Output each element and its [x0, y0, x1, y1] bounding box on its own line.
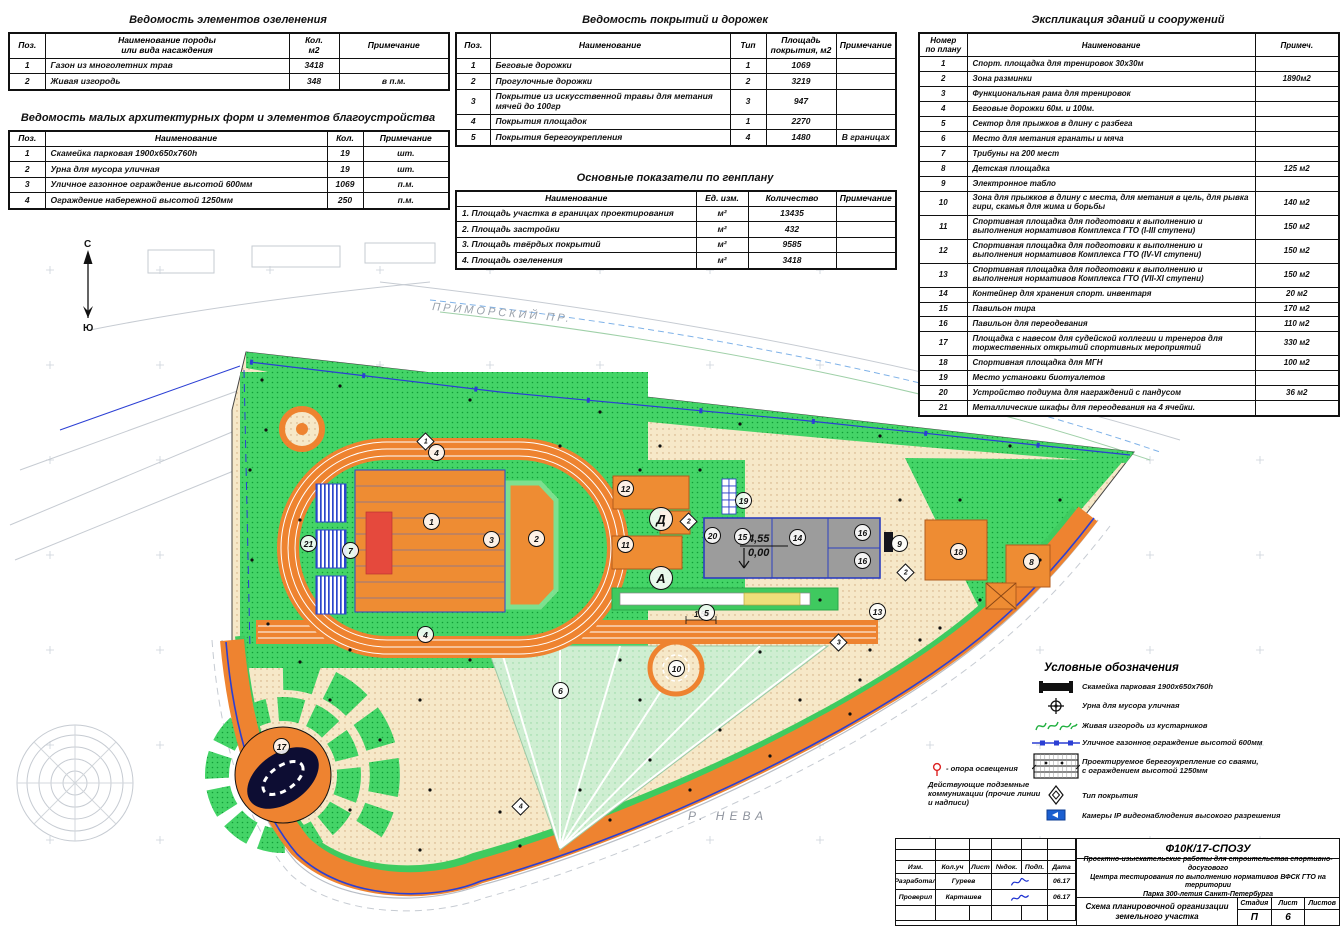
table-cell	[1255, 147, 1339, 162]
table-cell: 9	[919, 177, 967, 192]
plan-marker-3: 3	[483, 531, 500, 548]
plan-marker-18: 18	[950, 543, 967, 560]
plan-marker-15: 15	[734, 528, 751, 545]
table-cell: Живая изгородь	[45, 74, 289, 90]
table-cell: 4	[919, 102, 967, 117]
sheet-title: Схема планировочной организации земельно…	[1077, 898, 1238, 925]
table-cell: Площадка с навесом для судейской коллеги…	[967, 332, 1255, 356]
elevation-bottom: 0,00	[748, 547, 770, 559]
table-cell: 2. Площадь застройки	[456, 222, 696, 238]
round-plaza	[282, 409, 322, 449]
table-row: 18Спортивная площадка для МГН100 м2	[919, 356, 1339, 371]
table-cell: Зона разминки	[967, 72, 1255, 87]
table-row: 19Место установки биотуалетов	[919, 371, 1339, 386]
table-cell: Электронное табло	[967, 177, 1255, 192]
compass: С Ю	[83, 239, 93, 334]
stage-label: Стадия	[1238, 898, 1272, 910]
table-cell: Павильон тира	[967, 302, 1255, 317]
sig-name: Карташев	[936, 890, 992, 906]
river-label: Р. НЕВА	[688, 809, 768, 823]
table-row: 3Покрытие из искусственной травы для мет…	[456, 89, 896, 114]
table-row: 10Зона для прыжков в длину с места, для …	[919, 191, 1339, 215]
stage-value: П	[1238, 910, 1272, 925]
table-cell	[1255, 401, 1339, 416]
plan-marker-12: 12	[617, 480, 634, 497]
table-row: 1Газон из многолетних трав3418	[9, 58, 449, 74]
table-cell: Кол.	[327, 131, 363, 146]
table-cell: 19	[327, 162, 363, 178]
table-row: 20Устройство подиума для награждений с п…	[919, 386, 1339, 401]
table-cell: 150 м2	[1255, 263, 1339, 287]
table-cell: 2	[9, 162, 45, 178]
plan-letter-marker-А: А	[649, 566, 673, 590]
table-cell	[1255, 102, 1339, 117]
table-cell: Уличное газонное ограждение высотой 600м…	[45, 177, 327, 193]
table-cell: Покрытие из искусственной травы для мета…	[490, 89, 730, 114]
plan-marker-19: 19	[735, 492, 752, 509]
table-cell	[1255, 117, 1339, 132]
table-row: 1Скамейка парковая 1900х650х760h19шт.	[9, 146, 449, 162]
table-cell	[1255, 57, 1339, 72]
legend-item-label: Проектируемое берегоукрепление со сваями…	[1082, 757, 1259, 775]
table-cell: 2	[730, 74, 766, 90]
table-cell: Спортивная площадка для подготовки к вып…	[967, 215, 1255, 239]
table-cell: м²	[696, 237, 748, 253]
table-row: 3Уличное газонное ограждение высотой 600…	[9, 177, 449, 193]
table-cell	[836, 253, 896, 269]
table-cell: Наименование породы или вида насаждения	[45, 33, 289, 58]
col-ndok: №док.	[992, 861, 1022, 874]
table-row: 21Металлические шкафы для переодевания н…	[919, 401, 1339, 416]
table-row: 6Место для метания гранаты и мяча	[919, 132, 1339, 147]
sheet-label: Лист	[1272, 898, 1306, 910]
table-cell: 1069	[327, 177, 363, 193]
table-cell: 100 м2	[1255, 356, 1339, 371]
legend-item-label: - опора освещения	[946, 764, 1018, 773]
table-cell: 3219	[766, 74, 836, 90]
table-cell: Поз.	[9, 33, 45, 58]
plan-marker-6: 6	[552, 682, 569, 699]
table-cell: 110 м2	[1255, 317, 1339, 332]
table-cell: 11	[919, 215, 967, 239]
table-row: 12Спортивная площадка для подготовки к в…	[919, 239, 1339, 263]
table-cell: 10	[919, 191, 967, 215]
legend-item-label: Живая изгородь из кустарников	[1082, 721, 1208, 730]
table-cell: 947	[766, 89, 836, 114]
col-koluch: Кол.уч	[936, 861, 970, 874]
table-row: 2Прогулочные дорожки23219	[456, 74, 896, 90]
table-cell: 432	[748, 222, 836, 238]
table-cell: 1	[9, 58, 45, 74]
table-cell: Наименование	[45, 131, 327, 146]
sig-role: Проверил	[896, 890, 936, 906]
table-row: 7Трибуны на 200 мест	[919, 147, 1339, 162]
table-cell: м²	[696, 222, 748, 238]
indicators-table: НаименованиеЕд. изм.КоличествоПримечание…	[455, 190, 897, 270]
table-cell: 18	[919, 356, 967, 371]
table-cell: Спортивная площадка для подготовки к вып…	[967, 263, 1255, 287]
surfaces-table: Поз.НаименованиеТипПлощадь покрытия, м2П…	[455, 32, 897, 147]
sig-name: Гуреев	[936, 874, 992, 890]
table-cell: Примечание	[836, 33, 896, 58]
table-cell: 1	[919, 57, 967, 72]
table-cell: Ограждение набережной высотой 1250мм	[45, 193, 327, 209]
table-cell: Покрытия берегоукрепления	[490, 130, 730, 146]
table-cell: 3	[730, 89, 766, 114]
legend-left-column: - опора освещенияДействующие подземные к…	[928, 762, 1068, 811]
drawing-sheet: ПРИМОРСКИЙ ПР. Р. НЕВА С Ю 4,55 0,00 1,5…	[0, 0, 1341, 927]
table-cell: 1890м2	[1255, 72, 1339, 87]
signature-grid: Изм. Кол.уч Лист №док. Подп. Дата Разраб…	[896, 839, 1076, 925]
table-cell: м²	[696, 206, 748, 222]
table-cell: 9585	[748, 237, 836, 253]
table-cell	[836, 206, 896, 222]
table-cell: 1	[730, 58, 766, 74]
sig-date: 06.17	[1048, 890, 1076, 906]
table-row: 13Спортивная площадка для подготовки к в…	[919, 263, 1339, 287]
table-cell: 3418	[748, 253, 836, 269]
light-pole-icon	[928, 762, 946, 776]
table-cell: Беговые дорожки 60м. и 100м.	[967, 102, 1255, 117]
plan-marker-1: 1	[423, 513, 440, 530]
table-cell: Примечание	[339, 33, 449, 58]
hedge-icon	[1030, 718, 1082, 734]
plan-marker-16: 16	[854, 552, 871, 569]
table-cell: 17	[919, 332, 967, 356]
table-cell: 5	[919, 117, 967, 132]
table-cell: Площадь покрытия, м2	[766, 33, 836, 58]
table-cell: Поз.	[456, 33, 490, 58]
explication-table-title: Экспликация зданий и сооружений	[918, 14, 1338, 26]
table-cell: Детская площадка	[967, 162, 1255, 177]
table-cell: 140 м2	[1255, 191, 1339, 215]
legend-item: Действующие подземные коммуникации (проч…	[928, 780, 1068, 807]
table-cell: 19	[919, 371, 967, 386]
table-cell: Поз.	[9, 131, 45, 146]
table-cell: в п.м.	[339, 74, 449, 90]
table-row: 2Живая изгородь348в п.м.	[9, 74, 449, 90]
table-row: 3Функциональная рама для тренировок	[919, 87, 1339, 102]
table-cell	[1255, 371, 1339, 386]
table-cell	[836, 222, 896, 238]
table-cell: Зона для прыжков в длину с места, для ме…	[967, 191, 1255, 215]
table-cell: 150 м2	[1255, 239, 1339, 263]
table-row: 4. Площадь озеленениям²3418	[456, 253, 896, 269]
table-cell: 1	[456, 58, 490, 74]
stall-grid	[722, 479, 736, 514]
table-cell: Беговые дорожки	[490, 58, 730, 74]
table-cell: Примечание	[836, 191, 896, 206]
table-cell: Прогулочные дорожки	[490, 74, 730, 90]
table-cell: 3	[456, 89, 490, 114]
plan-marker-10: 10	[668, 660, 685, 677]
table-cell	[1255, 87, 1339, 102]
table-cell: шт.	[363, 162, 449, 178]
table-cell: 3. Площадь твёрдых покрытий	[456, 237, 696, 253]
table-cell: 13435	[748, 206, 836, 222]
legend-item-label: Скамейка парковая 1900х650х760h	[1082, 682, 1213, 691]
legend-item: Урна для мусора уличная	[1030, 698, 1330, 714]
table-cell: Металлические шкафы для переодевания на …	[967, 401, 1255, 416]
table-cell	[836, 89, 896, 114]
table-cell	[836, 58, 896, 74]
table-row: 11Спортивная площадка для подготовки к в…	[919, 215, 1339, 239]
signature	[992, 890, 1048, 906]
table-row: 4Ограждение набережной высотой 1250мм250…	[9, 193, 449, 209]
table-row: 5Покрытия берегоукрепления41480В граница…	[456, 130, 896, 146]
table-cell: 4	[456, 114, 490, 130]
table-cell: 330 м2	[1255, 332, 1339, 356]
table-cell: Контейнер для хранения спорт. инвентаря	[967, 287, 1255, 302]
table-cell: Примеч.	[1255, 33, 1339, 57]
table-row: 4Покрытия площадок12270	[456, 114, 896, 130]
table-row: 15Павильон тира170 м2	[919, 302, 1339, 317]
table-row: 14Контейнер для хранения спорт. инвентар…	[919, 287, 1339, 302]
plan-marker-14: 14	[789, 529, 806, 546]
table-cell: 3418	[289, 58, 339, 74]
plan-marker-16: 16	[854, 524, 871, 541]
legend: Условные обозначения Скамейка парковая 1…	[1030, 662, 1330, 825]
table-cell: Наименование	[456, 191, 696, 206]
legend-item: Камеры IP видеонаблюдения высокого разре…	[1030, 809, 1330, 821]
plan-marker-11: 11	[617, 536, 634, 553]
plan-letter-marker-Д: Д	[649, 507, 673, 531]
table-cell: 1	[9, 146, 45, 162]
table-row: 9Электронное табло	[919, 177, 1339, 192]
table-cell: 7	[919, 147, 967, 162]
col-podp: Подп.	[1022, 861, 1048, 874]
plan-marker-8: 8	[1023, 553, 1040, 570]
table-cell: Номер по плану	[919, 33, 967, 57]
table-cell: 6	[919, 132, 967, 147]
plan-marker-2: 2	[528, 530, 545, 547]
title-block: Изм. Кол.уч Лист №док. Подп. Дата Разраб…	[895, 838, 1340, 926]
maf-table: Поз.НаименованиеКол.Примечание1Скамейка …	[8, 130, 450, 210]
table-cell	[1255, 132, 1339, 147]
table-cell: 125 м2	[1255, 162, 1339, 177]
project-description: Проектно-изыскательские работы для строи…	[1077, 859, 1339, 898]
plan-marker-7: 7	[342, 542, 359, 559]
table-cell: 4	[9, 193, 45, 209]
legend-item-label: Урна для мусора уличная	[1082, 701, 1179, 710]
col-izm: Изм.	[896, 861, 936, 874]
table-cell: м²	[696, 253, 748, 269]
legend-item-label: Тип покрытия	[1082, 791, 1138, 800]
table-cell: 1480	[766, 130, 836, 146]
table-cell: 13	[919, 263, 967, 287]
table-cell: В границах	[836, 130, 896, 146]
table-cell: Урна для мусора уличная	[45, 162, 327, 178]
fence-icon	[1030, 739, 1082, 747]
table-cell: 4. Площадь озеленения	[456, 253, 696, 269]
table-cell: Место установки биотуалетов	[967, 371, 1255, 386]
plan-marker-21: 21	[300, 535, 317, 552]
long-jump-runway	[612, 588, 838, 610]
table-cell: Тип	[730, 33, 766, 58]
sig-role: Разработал	[896, 874, 936, 890]
table-cell: 2	[9, 74, 45, 90]
table-cell: 8	[919, 162, 967, 177]
table-cell: Функциональная рама для тренировок	[967, 87, 1255, 102]
sheets-value	[1305, 910, 1339, 925]
table-cell: 150 м2	[1255, 215, 1339, 239]
table-cell: 348	[289, 74, 339, 90]
table-cell: Устройство подиума для награждений с пан…	[967, 386, 1255, 401]
greening-table: Поз.Наименование породы или вида насажде…	[8, 32, 450, 91]
table-cell: 15	[919, 302, 967, 317]
table-cell: Павильон для переодевания	[967, 317, 1255, 332]
table-row: 3. Площадь твёрдых покрытийм²9585	[456, 237, 896, 253]
legend-item-label: Камеры IP видеонаблюдения высокого разре…	[1082, 811, 1280, 820]
plan-marker-17: 17	[273, 738, 290, 755]
legend-item: Проектируемое берегоукрепление со сваями…	[1030, 751, 1330, 781]
table-row: 4Беговые дорожки 60м. и 100м.	[919, 102, 1339, 117]
table-cell	[339, 58, 449, 74]
table-cell: 20 м2	[1255, 287, 1339, 302]
table-cell: Трибуны на 200 мест	[967, 147, 1255, 162]
table-row: 8Детская площадка125 м2	[919, 162, 1339, 177]
table-cell: 21	[919, 401, 967, 416]
table-cell: Спортивная площадка для подготовки к вып…	[967, 239, 1255, 263]
table-cell: 12	[919, 239, 967, 263]
table-cell: шт.	[363, 146, 449, 162]
table-cell: Наименование	[967, 33, 1255, 57]
sheets-label: Листов	[1305, 898, 1339, 910]
table-cell: 2270	[766, 114, 836, 130]
table-cell: 19	[327, 146, 363, 162]
indicators-table-title: Основные показатели по генплану	[455, 172, 895, 184]
table-row: 1Беговые дорожки11069	[456, 58, 896, 74]
table-cell: 16	[919, 317, 967, 332]
table-cell: 1. Площадь участка в границах проектиров…	[456, 206, 696, 222]
legend-title: Условные обозначения	[1030, 662, 1330, 674]
bench-icon	[1030, 680, 1082, 694]
explication-table: Номер по плануНаименованиеПримеч.1Спорт.…	[918, 32, 1340, 417]
table-cell: 3	[9, 177, 45, 193]
legend-item: Живая изгородь из кустарников	[1030, 718, 1330, 734]
col-list: Лист	[970, 861, 992, 874]
table-cell: 5	[456, 130, 490, 146]
legend-item: Уличное газонное ограждение высотой 600м…	[1030, 738, 1330, 747]
table-row: 17Площадка с навесом для судейской колле…	[919, 332, 1339, 356]
table-cell: Сектор для прыжков в длину с разбега	[967, 117, 1255, 132]
table-cell: 170 м2	[1255, 302, 1339, 317]
sig-date: 06.17	[1048, 874, 1076, 890]
table-cell: 2	[456, 74, 490, 90]
table-cell: Спортивная площадка для МГН	[967, 356, 1255, 371]
table-row: 16Павильон для переодевания110 м2	[919, 317, 1339, 332]
table-row: 2Урна для мусора уличная19шт.	[9, 162, 449, 178]
compass-south-label: Ю	[83, 323, 93, 334]
plan-marker-5: 5	[698, 604, 715, 621]
table-row: 2Зона разминки1890м2	[919, 72, 1339, 87]
table-row: 1. Площадь участка в границах проектиров…	[456, 206, 896, 222]
table-cell: 1	[730, 114, 766, 130]
table-cell: 2	[919, 72, 967, 87]
table-cell	[1255, 177, 1339, 192]
legend-item: Скамейка парковая 1900х650х760h	[1030, 680, 1330, 694]
signature	[992, 874, 1048, 890]
table-cell: 250	[327, 193, 363, 209]
plan-marker-4: 4	[428, 444, 445, 461]
surfaces-table-title: Ведомость покрытий и дорожек	[455, 14, 895, 26]
maf-table-title: Ведомость малых архитектурных форм и эле…	[8, 112, 448, 124]
table-cell: 3	[919, 87, 967, 102]
table-row: 2. Площадь застройким²432	[456, 222, 896, 238]
table-cell	[836, 74, 896, 90]
table-cell: Покрытия площадок	[490, 114, 730, 130]
sheet-value: 6	[1272, 910, 1306, 925]
table-cell: 4	[730, 130, 766, 146]
table-row: 5Сектор для прыжков в длину с разбега	[919, 117, 1339, 132]
table-cell	[836, 237, 896, 253]
table-cell: п.м.	[363, 193, 449, 209]
table-cell: Кол. м2	[289, 33, 339, 58]
plan-marker-9: 9	[891, 535, 908, 552]
urn-icon	[1030, 698, 1082, 714]
table-cell: Место для метания гранаты и мяча	[967, 132, 1255, 147]
legend-item: - опора освещения	[928, 762, 1068, 776]
table-cell: Ед. изм.	[696, 191, 748, 206]
plan-marker-4: 4	[417, 626, 434, 643]
table-row: 1Спорт. площадка для тренировок 30х30м	[919, 57, 1339, 72]
table-cell: 36 м2	[1255, 386, 1339, 401]
table-cell: 20	[919, 386, 967, 401]
legend-item-label: Уличное газонное ограждение высотой 600м…	[1082, 738, 1262, 747]
table-cell: 14	[919, 287, 967, 302]
greening-table-title: Ведомость элементов озеленения	[8, 14, 448, 26]
table-cell: Газон из многолетних трав	[45, 58, 289, 74]
table-cell: 1069	[766, 58, 836, 74]
legend-item: Тип покрытия	[1030, 785, 1330, 805]
table-cell: Скамейка парковая 1900х650х760h	[45, 146, 327, 162]
plan-marker-13: 13	[869, 603, 886, 620]
table-cell: Наименование	[490, 33, 730, 58]
table-cell: Количество	[748, 191, 836, 206]
table-cell: Спорт. площадка для тренировок 30х30м	[967, 57, 1255, 72]
stadium	[281, 442, 625, 654]
table-cell: п.м.	[363, 177, 449, 193]
col-data: Дата	[1048, 861, 1076, 874]
compass-north-label: С	[84, 239, 91, 250]
table-cell: Примечание	[363, 131, 449, 146]
table-cell	[836, 114, 896, 130]
plan-marker-20: 20	[704, 527, 721, 544]
legend-item-label: Действующие подземные коммуникации (проч…	[928, 780, 1040, 807]
